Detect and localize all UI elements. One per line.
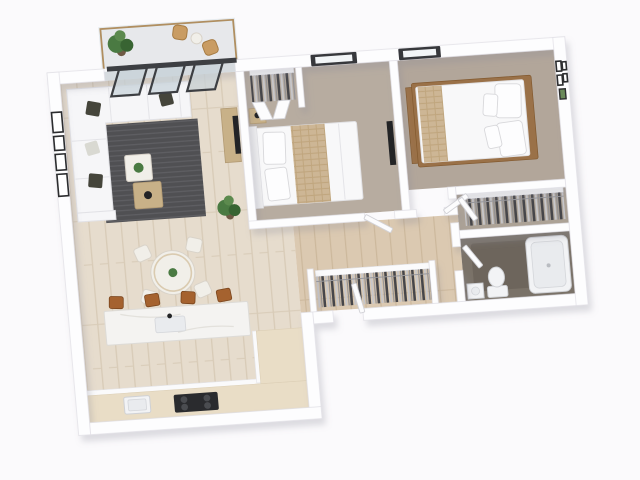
bar-stool: [181, 291, 195, 304]
bed-pillow: [264, 167, 290, 201]
rattan-chair: [172, 25, 188, 41]
closet-hanging-clothes: [250, 73, 296, 103]
kitchen-sink: [124, 396, 151, 415]
bar-stool: [109, 296, 123, 308]
dining-chair: [185, 237, 202, 254]
floor-plan-render: [0, 0, 640, 480]
island-sink: [155, 316, 186, 333]
throw-pillow: [88, 173, 103, 188]
bed: [405, 75, 538, 167]
floor-plan-canvas: [0, 0, 640, 480]
bedroom-2: [405, 75, 538, 167]
vanity-sink: [467, 283, 484, 299]
cooktop: [174, 392, 219, 413]
bed-pillow: [495, 84, 522, 118]
bathtub: [525, 235, 572, 294]
botanical-frame: [559, 89, 566, 99]
throw-pillow: [85, 101, 101, 117]
bar-stool: [216, 288, 232, 302]
bed-runner: [291, 124, 332, 204]
bed: [248, 119, 363, 208]
bed-pillow: [263, 132, 286, 164]
balcony-side-table: [191, 33, 203, 45]
accent-pillow: [483, 94, 498, 117]
bar-stool: [144, 293, 160, 307]
